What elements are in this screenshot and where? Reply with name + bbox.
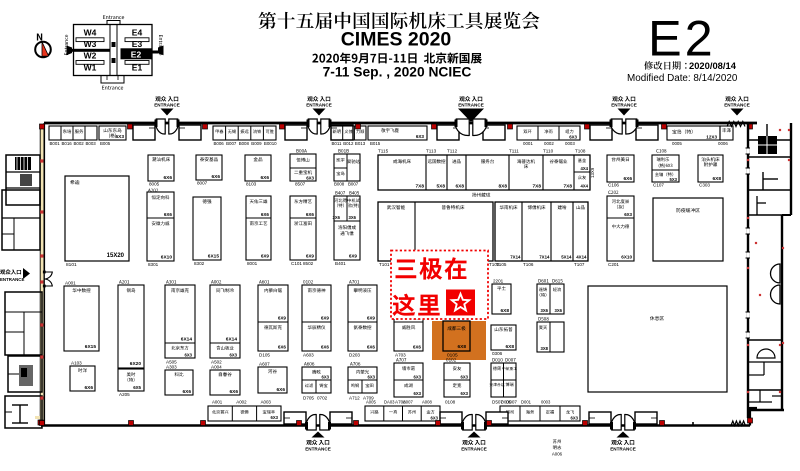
svg-text:6X8: 6X8	[712, 176, 721, 182]
svg-text:T111: T111	[509, 149, 519, 154]
svg-text:6X3: 6X3	[368, 375, 376, 380]
svg-text:D203: D203	[349, 353, 360, 358]
svg-text:6X5: 6X5	[133, 385, 141, 390]
svg-text:E2: E2	[131, 50, 142, 60]
svg-text:0105: 0105	[447, 353, 458, 359]
svg-text:7X8: 7X8	[415, 184, 424, 190]
svg-text:6X9: 6X9	[367, 316, 376, 321]
svg-text:B401: B401	[335, 261, 346, 266]
svg-text:8001: 8001	[247, 261, 258, 266]
svg-text:8302: 8302	[194, 261, 205, 266]
svg-text:A712: A712	[349, 396, 360, 401]
svg-text:6X3: 6X3	[271, 415, 279, 420]
svg-text:B001: B001	[50, 141, 61, 146]
svg-text:A607: A607	[259, 362, 270, 367]
svg-text:3X6: 3X6	[541, 308, 549, 313]
svg-text:5X8: 5X8	[436, 184, 445, 190]
svg-text:0002: 0002	[544, 141, 554, 146]
svg-text:6X14: 6X14	[181, 337, 193, 343]
svg-text:6X3: 6X3	[416, 134, 425, 139]
svg-text:C106: C106	[608, 183, 619, 188]
svg-text:A001: A001	[65, 281, 76, 286]
svg-text:6X15: 6X15	[85, 344, 97, 350]
svg-text:6X6: 6X6	[306, 212, 315, 217]
svg-text:4X4: 4X4	[581, 166, 589, 171]
svg-text:A007: A007	[403, 400, 413, 405]
svg-text:6X10: 6X10	[621, 255, 632, 260]
svg-text:6X6: 6X6	[321, 345, 330, 350]
svg-text:T101: T101	[379, 262, 390, 267]
svg-text:E1: E1	[132, 63, 143, 73]
svg-text:D105: D105	[259, 353, 270, 358]
svg-text:6X8: 6X8	[457, 344, 466, 350]
svg-text:8101: 8101	[66, 262, 77, 268]
svg-text:A002: A002	[236, 400, 247, 405]
svg-text:A005: A005	[366, 400, 376, 405]
svg-text:5X14: 5X14	[561, 255, 572, 260]
svg-text:W1: W1	[84, 63, 97, 73]
svg-text:3X6: 3X6	[555, 308, 563, 313]
svg-text:T105: T105	[496, 262, 507, 267]
svg-text:ENTRANCE: ENTRANCE	[458, 103, 484, 108]
svg-text:6X6: 6X6	[413, 345, 422, 350]
svg-text:8507: 8507	[295, 182, 306, 187]
svg-text:6X3: 6X3	[115, 134, 124, 140]
svg-text:C201: C201	[608, 262, 619, 267]
svg-text:B013: B013	[355, 141, 366, 146]
svg-text:8502: 8502	[303, 261, 314, 266]
svg-text:C107: C107	[653, 183, 664, 188]
svg-text:6X9: 6X9	[306, 254, 315, 259]
svg-text:ENTRANCE: ENTRANCE	[306, 103, 332, 108]
svg-text:6X6: 6X6	[163, 175, 172, 181]
svg-text:T108: T108	[575, 149, 586, 154]
svg-text:T110: T110	[543, 149, 554, 154]
svg-text:A205: A205	[119, 392, 130, 397]
svg-text:6X3: 6X3	[461, 375, 469, 380]
svg-text:A004: A004	[211, 365, 222, 370]
svg-text:6X6: 6X6	[211, 174, 220, 180]
svg-text:7X8: 7X8	[563, 184, 572, 190]
svg-text:6X8: 6X8	[500, 308, 509, 314]
svg-text:7X8: 7X8	[532, 184, 541, 190]
svg-text:6X3: 6X3	[230, 353, 238, 358]
svg-text:2201: 2201	[493, 279, 504, 284]
svg-text:6X6: 6X6	[276, 387, 285, 393]
svg-text:12X3: 12X3	[706, 135, 717, 140]
svg-text:6X6: 6X6	[182, 389, 191, 395]
svg-text:6X6: 6X6	[229, 389, 238, 395]
svg-text:6X3: 6X3	[461, 391, 469, 396]
svg-text:6X14: 6X14	[226, 337, 238, 343]
svg-text:C101: C101	[291, 261, 302, 266]
svg-text:6X3: 6X3	[322, 375, 330, 380]
svg-text:B0010: B0010	[264, 141, 277, 146]
svg-text:A603: A603	[303, 353, 314, 358]
svg-text:6X6: 6X6	[261, 212, 270, 217]
svg-text:B016: B016	[62, 141, 73, 146]
svg-text:0702: 0702	[317, 396, 328, 401]
svg-text:7X14: 7X14	[539, 255, 550, 260]
svg-text:0005: 0005	[672, 141, 682, 146]
svg-text:0003: 0003	[565, 141, 575, 146]
svg-text:B009: B009	[251, 141, 262, 146]
svg-text:3X6: 3X6	[349, 215, 357, 220]
svg-text:ENTRANCE: ENTRANCE	[611, 103, 637, 108]
svg-text:C303: C303	[699, 183, 710, 188]
svg-text:6X10: 6X10	[161, 255, 173, 261]
svg-text:B008: B008	[239, 141, 250, 146]
svg-text:3X6: 3X6	[333, 215, 341, 220]
svg-text:T115: T115	[378, 149, 389, 154]
svg-text:T113: T113	[426, 149, 437, 154]
svg-text:B003: B003	[86, 141, 97, 146]
svg-text:E3: E3	[132, 39, 143, 49]
svg-text:Modified Date: 8/14/2020: Modified Date: 8/14/2020	[627, 73, 738, 84]
svg-text:B007: B007	[226, 141, 237, 146]
svg-text:DA03: DA03	[384, 400, 395, 405]
svg-text:13X9: 13X9	[590, 167, 595, 178]
svg-text:0306: 0306	[492, 351, 503, 356]
svg-text:6X3: 6X3	[306, 176, 314, 181]
svg-text:0001: 0001	[523, 141, 533, 146]
svg-text:6X3: 6X3	[624, 212, 632, 217]
svg-text:7-11 Sep. , 2020 NCIEC: 7-11 Sep. , 2020 NCIEC	[323, 65, 472, 80]
svg-text:D705: D705	[303, 396, 314, 401]
svg-text:0006: 0006	[718, 141, 728, 146]
svg-text:B002: B002	[74, 141, 85, 146]
svg-text:6X3: 6X3	[431, 416, 439, 421]
svg-text:T106: T106	[523, 262, 534, 267]
svg-text:E2: E2	[648, 9, 716, 66]
svg-text:B012: B012	[343, 141, 354, 146]
svg-text:W2: W2	[84, 51, 97, 61]
svg-text:ENTRANCE: ENTRANCE	[154, 103, 180, 108]
svg-text:8X8: 8X8	[498, 184, 507, 190]
svg-text:6X9: 6X9	[278, 316, 287, 321]
svg-text:W3: W3	[84, 39, 97, 49]
svg-text:B011: B011	[332, 141, 342, 146]
svg-text:E4: E4	[132, 28, 143, 38]
svg-text:6X6: 6X6	[164, 212, 173, 217]
svg-text:5X3: 5X3	[670, 177, 678, 182]
svg-text:A008: A008	[422, 400, 432, 405]
svg-text:T107: T107	[574, 262, 585, 267]
svg-text:6X3: 6X3	[185, 353, 193, 358]
svg-text:B005: B005	[100, 141, 111, 146]
svg-text:6X3: 6X3	[414, 375, 422, 380]
svg-text:4X14: 4X14	[576, 255, 587, 260]
svg-text:6X15: 6X15	[208, 254, 220, 260]
svg-text:6X6: 6X6	[278, 345, 287, 350]
svg-text:A103: A103	[71, 361, 82, 366]
svg-text:8005: 8005	[149, 182, 160, 187]
svg-text:6X6: 6X6	[623, 176, 632, 182]
svg-text:6X20: 6X20	[130, 361, 142, 367]
svg-text:B006: B006	[214, 141, 225, 146]
svg-text:6X8: 6X8	[455, 184, 464, 190]
svg-text:8103: 8103	[246, 182, 257, 187]
svg-text:A703: A703	[395, 353, 406, 358]
svg-text:ENTRANCE: ENTRANCE	[305, 447, 331, 452]
svg-text:B007: B007	[348, 182, 359, 187]
svg-text:6X6: 6X6	[84, 385, 93, 391]
svg-text:8007: 8007	[197, 181, 208, 186]
svg-text:W4: W4	[84, 28, 97, 38]
svg-text:ENTRANCE: ENTRANCE	[724, 103, 750, 108]
svg-text:6X9: 6X9	[349, 254, 358, 259]
svg-text:6X9: 6X9	[321, 316, 330, 321]
svg-text:D005: D005	[501, 400, 512, 405]
svg-text:ENTRANCE: ENTRANCE	[0, 277, 24, 282]
svg-text:6X3: 6X3	[571, 416, 579, 421]
svg-text:A303: A303	[166, 365, 177, 370]
svg-text:2020/08/14: 2020/08/14	[689, 60, 737, 71]
svg-text:6X6: 6X6	[260, 175, 269, 181]
svg-text:7X14: 7X14	[510, 255, 521, 260]
svg-text:D001: D001	[521, 400, 532, 405]
svg-text:3X8: 3X8	[541, 346, 549, 351]
svg-text:B008: B008	[334, 182, 345, 187]
svg-text:CIMES 2020: CIMES 2020	[341, 29, 452, 51]
svg-text:8301: 8301	[148, 262, 159, 267]
svg-text:ENTRANCE: ENTRANCE	[461, 447, 487, 452]
svg-text:0108: 0108	[445, 400, 456, 405]
svg-text:ENTRANCE: ENTRANCE	[610, 447, 636, 452]
svg-text:0003: 0003	[541, 400, 551, 405]
svg-text:A006: A006	[552, 452, 563, 457]
svg-text:6X3: 6X3	[569, 135, 577, 140]
svg-text:6X8: 6X8	[505, 344, 514, 350]
svg-text:6X3: 6X3	[414, 391, 422, 396]
svg-text:T112: T112	[447, 149, 458, 154]
svg-text:4X4: 4X4	[581, 184, 589, 189]
svg-text:15X20: 15X20	[107, 253, 125, 259]
svg-text:B015: B015	[370, 141, 381, 146]
svg-text:6X6: 6X6	[367, 345, 376, 350]
svg-text:A001: A001	[212, 400, 223, 405]
svg-text:6X9: 6X9	[261, 254, 270, 259]
svg-text:A003: A003	[261, 400, 272, 405]
